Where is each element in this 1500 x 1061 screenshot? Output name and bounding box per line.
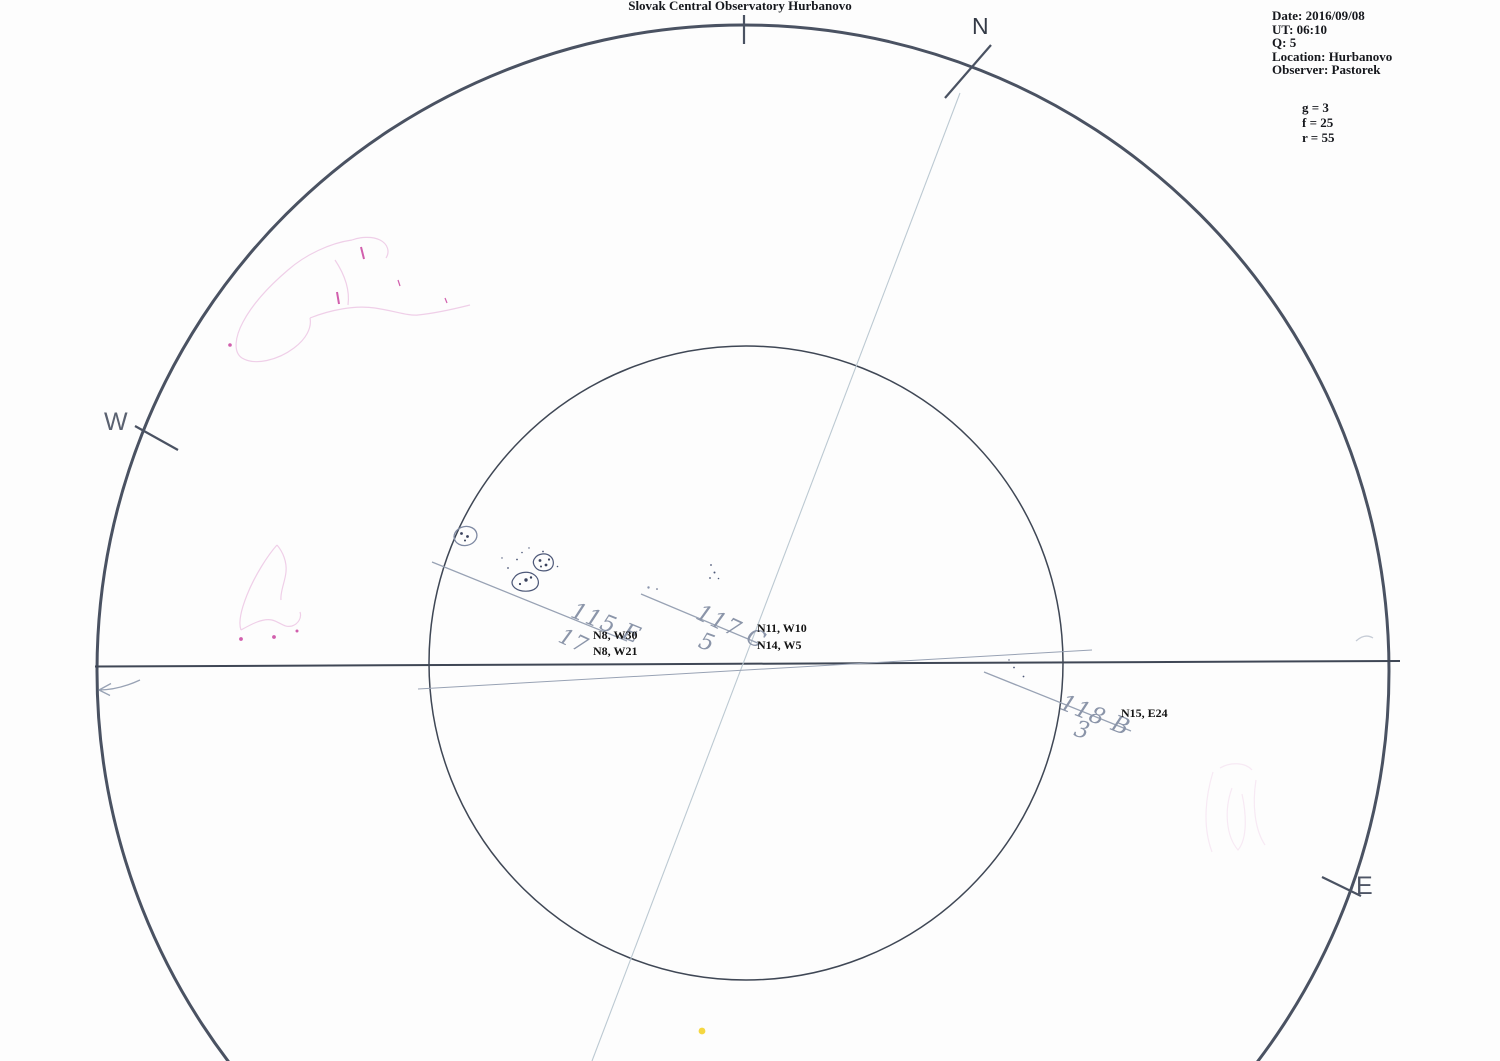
group-115-pores (501, 547, 558, 569)
penumbra-outline-right (533, 554, 553, 571)
group-115-umbrae (519, 558, 550, 585)
west-pencil-arrow (99, 680, 140, 696)
faint-pencil-equator-line (418, 650, 1092, 689)
page-title: Slovak Central Observatory Hurbanovo (450, 0, 1030, 14)
rotation-axis-line (592, 93, 960, 1061)
solar-disk-drawing (0, 0, 1500, 1061)
group-115-coordinates-2: N8, W21 (593, 644, 637, 659)
equator-line (95, 661, 1400, 667)
sunspot-counts-block: g = 3 f = 25 r = 55 (1302, 100, 1334, 145)
pencil-smudge (1356, 636, 1373, 641)
orientation-ticks (135, 15, 1361, 896)
plage-sketch-southeast (1206, 764, 1265, 852)
compass-east-label: E (1356, 872, 1373, 901)
group-117-coordinates-2: N14, W5 (757, 638, 801, 653)
observation-info-block: Date: 2016/09/08 UT: 06:10 Q: 5 Location… (1272, 9, 1392, 77)
compass-west-label: W (104, 408, 128, 437)
solar-disk-limb (97, 25, 1389, 1061)
plage-accents (228, 247, 447, 641)
observation-ut: UT: 06:10 (1272, 23, 1392, 37)
wolf-number: r = 55 (1302, 130, 1334, 145)
group-118-coordinates-1: N15, E24 (1121, 706, 1168, 721)
penumbra-outline-left (512, 572, 538, 591)
observation-location: Location: Hurbanovo (1272, 50, 1392, 64)
spot-count: f = 25 (1302, 115, 1334, 130)
plage-sketches (236, 237, 1265, 852)
pencil-marks (99, 562, 1373, 731)
group-117-coordinates-1: N11, W10 (757, 621, 807, 636)
observation-quality: Q: 5 (1272, 36, 1392, 50)
plage-sketch-southwest (240, 545, 301, 630)
sunspot-group-115-sketch (452, 524, 558, 591)
group-count: g = 3 (1302, 100, 1334, 115)
observation-date: Date: 2016/09/08 (1272, 9, 1392, 23)
group-115-coordinates-1: N8, W30 (593, 628, 637, 643)
yellow-mark (699, 1028, 706, 1035)
observation-observer: Observer: Pastorek (1272, 63, 1392, 77)
plage-sketch-northwest (236, 237, 470, 361)
sunspot-group-117-sketch (647, 564, 719, 590)
scanned-observation-sheet: Slovak Central Observatory Hurbanovo Dat… (0, 0, 1500, 1061)
compass-north-label: N (972, 13, 989, 40)
circled-spot-umbrae (460, 532, 469, 541)
